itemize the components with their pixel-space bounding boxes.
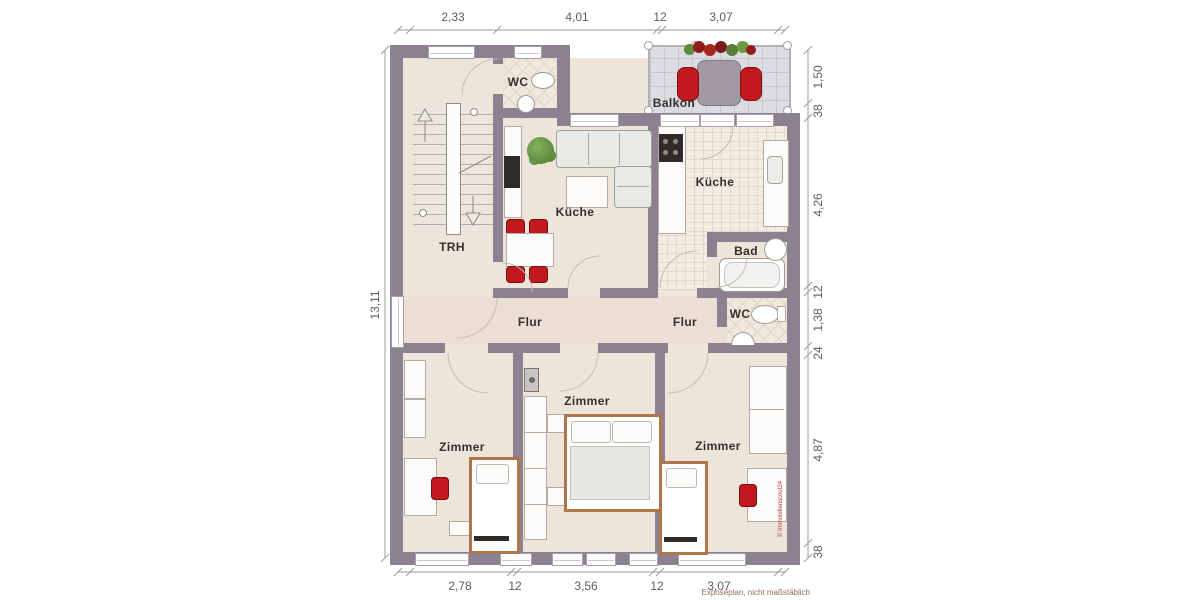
floor-plan: Balkon WC Küche Küche Bad TRH Flur Flur … <box>0 0 1200 600</box>
dim-right-4: 12 <box>811 285 825 298</box>
room-label-balkon: Balkon <box>653 96 695 110</box>
single-bed <box>469 457 520 554</box>
window <box>514 46 542 59</box>
wall-segment <box>493 94 503 262</box>
dim-top-3: 12 <box>653 10 666 24</box>
room-label-zimmer-right: Zimmer <box>695 439 741 453</box>
staircase-stringer <box>446 103 461 235</box>
kitchen-passage-floor <box>658 232 707 290</box>
balcony-door <box>700 114 735 127</box>
shelf <box>449 521 471 536</box>
dim-bottom-1: 2,78 <box>448 579 471 593</box>
room-label-bad: Bad <box>734 244 758 258</box>
sofa-chaise <box>614 166 652 208</box>
room-label-zimmer-left: Zimmer <box>439 440 485 454</box>
desk-chair-icon <box>431 477 449 500</box>
room-label-wc-mid: WC <box>730 307 751 321</box>
wall-segment <box>403 343 445 353</box>
double-bed <box>564 414 662 512</box>
window <box>552 553 583 566</box>
dim-right-7: 4,87 <box>811 438 825 461</box>
entry-door <box>391 296 404 348</box>
wardrobe <box>404 360 426 399</box>
nightstand <box>547 487 565 506</box>
wall-segment <box>707 232 800 242</box>
appliance-icon <box>524 368 539 392</box>
bathtub-icon <box>719 258 785 292</box>
wardrobe <box>524 468 547 506</box>
dim-right-6: 24 <box>811 346 825 359</box>
wardrobe <box>524 504 547 540</box>
toilet-icon <box>531 72 555 89</box>
dim-bottom-2: 12 <box>508 579 521 593</box>
dim-right-8: 38 <box>811 545 825 558</box>
window <box>500 553 532 566</box>
wardrobe <box>404 399 426 438</box>
kitchen-sink-icon <box>767 156 783 184</box>
railing-post <box>783 41 792 50</box>
plan-disclaimer-note: Exposéplan, nicht maßstäblich <box>702 588 811 597</box>
sofa <box>556 130 652 168</box>
wall-segment <box>600 288 658 298</box>
window <box>586 553 616 566</box>
dim-right-3: 4,26 <box>811 193 825 216</box>
vertical-watermark: © Immobilienscout24 <box>778 481 784 537</box>
hand-basin-icon <box>517 95 535 113</box>
room-label-wc-top: WC <box>508 75 529 89</box>
wardrobe <box>524 432 547 470</box>
railing-post <box>644 41 653 50</box>
nightstand <box>547 414 565 433</box>
single-bed <box>659 461 708 555</box>
cooktop-icon <box>504 156 520 188</box>
room-label-kueche-right: Küche <box>696 175 735 189</box>
balcony-table <box>697 60 741 106</box>
dim-top-4: 3,07 <box>709 10 732 24</box>
window <box>629 553 658 566</box>
window <box>428 46 475 59</box>
room-label-trh: TRH <box>439 240 465 254</box>
window <box>570 114 619 127</box>
dim-top-1: 2,33 <box>441 10 464 24</box>
dim-right-2: 38 <box>811 104 825 117</box>
room-label-flur-right: Flur <box>673 315 697 329</box>
wardrobe <box>524 396 547 434</box>
wardrobe <box>749 366 787 454</box>
dining-chair-icon <box>529 266 548 283</box>
dim-right-1: 1,50 <box>811 65 825 88</box>
wall-segment <box>488 343 560 353</box>
dim-right-5: 1,38 <box>811 308 825 331</box>
desk-chair-icon <box>739 484 757 507</box>
dining-table <box>506 233 554 267</box>
toilet-icon <box>751 305 779 324</box>
dim-top-2: 4,01 <box>565 10 588 24</box>
room-label-kueche-left: Küche <box>556 205 595 219</box>
wall-segment <box>598 343 668 353</box>
wall-segment <box>717 298 727 327</box>
room-label-flur-left: Flur <box>518 315 542 329</box>
hand-basin-icon <box>764 238 787 261</box>
dining-chair-icon <box>506 266 525 283</box>
wall-segment <box>390 45 570 58</box>
flower-box <box>684 40 756 57</box>
coffee-table <box>566 176 608 208</box>
window <box>415 553 469 566</box>
window <box>736 114 774 127</box>
wall-segment <box>707 232 717 257</box>
dim-bottom-4: 12 <box>650 579 663 593</box>
plant-icon <box>527 137 554 164</box>
stove-icon <box>659 134 683 162</box>
wall-segment <box>493 58 503 64</box>
balcony-chair-icon <box>740 67 762 101</box>
dim-bottom-3: 3,56 <box>574 579 597 593</box>
wall-segment <box>493 288 568 298</box>
dim-left-1: 13,11 <box>368 290 382 319</box>
room-label-zimmer-mid: Zimmer <box>564 394 610 408</box>
cistern <box>777 306 786 322</box>
